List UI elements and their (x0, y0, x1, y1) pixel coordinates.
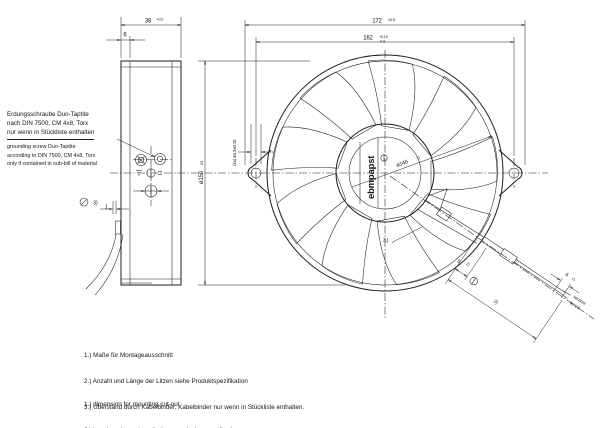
annotation-tie-overhang: 3) 1 (80, 198, 129, 214)
centerlines (110, 50, 594, 319)
cable-symbol (468, 276, 479, 287)
grounding-screw-label: Erdungsschraube Duo-Taptite nach DIN 750… (7, 111, 97, 168)
dim-overall-tol: ±0.5 (388, 17, 396, 22)
dim-body-tol: ±1 (199, 160, 204, 165)
label-line: grounding screw Duo-Taptite (7, 143, 97, 151)
cable-channel (417, 189, 483, 244)
dim-mount-holes-value: (4x) ø4.3±0.15 (232, 139, 237, 166)
note-line: 1.) dimension for mounting cut-out (84, 401, 279, 410)
dim-wire-strip-ref: 2) (465, 262, 470, 268)
tie-overhang-ref: 3) (93, 201, 98, 207)
dim-hole-spacing-tol-bot: -0.3 (379, 40, 385, 44)
label-line: nur wenn in Stückliste enthalten (7, 129, 94, 138)
dim-hole-spacing-tol-top: +0.15 (379, 35, 388, 39)
grounding-label-german: Erdungsschraube Duo-Taptite nach DIN 750… (7, 111, 94, 140)
cable-tie-ref: 3.) (383, 238, 389, 244)
cable-assembly (481, 237, 570, 299)
dim-flange-value: 6 (123, 33, 127, 39)
label-line: according to DIN 7500, CM 4x8, Torx (7, 152, 97, 160)
hub-symbol (381, 155, 387, 161)
label-line: nach DIN 7500, CM 4x8, Torx (7, 120, 94, 129)
dim-tip: 6 ±1 verzinnt tinned (551, 272, 587, 311)
tie-overhang-value: 1 (105, 205, 108, 211)
brand-label: ebmpapst (366, 155, 377, 199)
dim-tip-tol: ±1 (571, 277, 576, 282)
notes-english: 1.) dimension for mounting cut-out 2.) l… (84, 384, 279, 428)
note-line: 1.) Maße für Montageausschnitt (84, 352, 304, 361)
label-line: Erdungsschraube Duo-Taptite (7, 111, 94, 120)
dim-impeller-ref: 1) (416, 155, 421, 160)
grounding-label-leader (117, 139, 155, 157)
dim-wire-strip: 5 2) (445, 241, 486, 287)
dim-impeller-value: ø146 (396, 159, 409, 169)
hub-screw-icon (133, 185, 169, 197)
dim-cable-length: 2) (448, 280, 562, 344)
dim-body-value: ø150 (199, 170, 205, 184)
fan-technical-drawing: 38 +0.5 6 ø150 ±1 3) 1 (0, 0, 600, 428)
grounding-label-english: grounding screw Duo-Taptite according to… (7, 143, 97, 167)
dim-depth-tol: +0.5 (157, 18, 164, 22)
dim-overall-value: 172 (372, 19, 382, 25)
dim-cable-length-ref: 2) (492, 299, 499, 307)
cable-side (86, 221, 123, 295)
annotation-cable-tie-front: 3.) (383, 227, 422, 244)
dim-depth-value: 38 (145, 19, 152, 25)
dim-tip-value: 6 (564, 272, 570, 279)
grounding-screw-icon (133, 154, 172, 166)
dim-hole-spacing-value: 162 (363, 36, 373, 42)
label-line: only if contained in sub-bill of materia… (7, 160, 97, 168)
side-view (86, 61, 181, 295)
dim-flange: 6 (106, 33, 145, 59)
